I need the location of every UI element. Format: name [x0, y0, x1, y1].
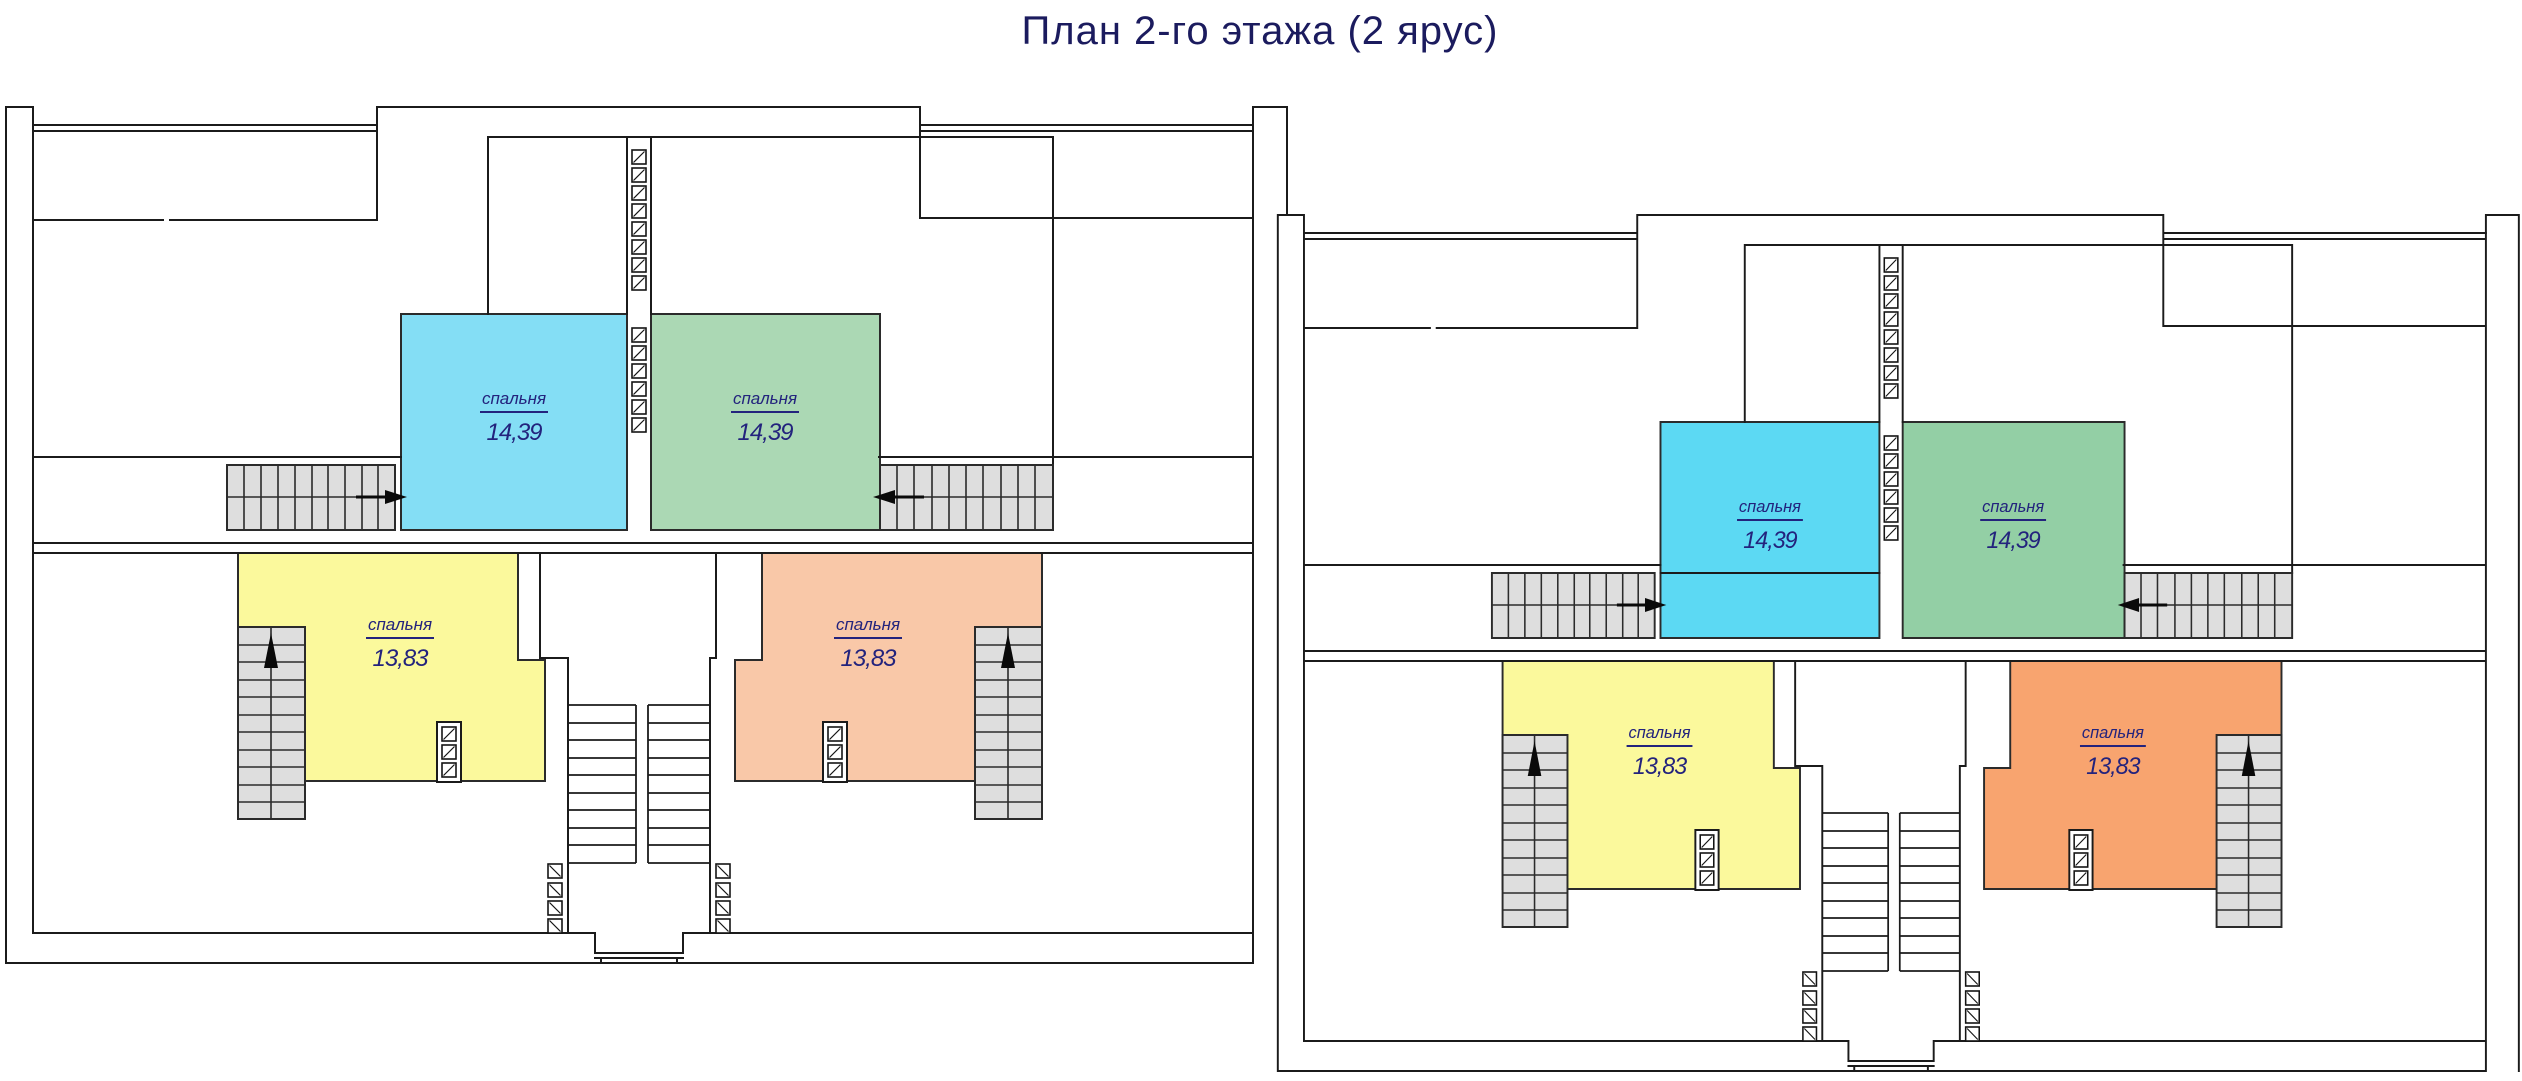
party-wall-cap — [1253, 107, 1287, 215]
vent-panel-right — [823, 722, 847, 782]
central-staircase — [548, 705, 730, 933]
walls — [6, 107, 1253, 963]
walls — [1278, 215, 2486, 1071]
svg-text:спальня: спальня — [1982, 497, 2044, 516]
stair-lower-left — [238, 627, 305, 819]
svg-text:13,83: 13,83 — [2086, 754, 2140, 780]
vent-panel-left — [1695, 830, 1718, 890]
unit-right: спальня 14,39 спальня 14,39 спальня 13,8… — [1278, 215, 2519, 1071]
floor-plan-canvas: План 2-го этажа (2 ярус) спальня 14,39 с… — [0, 0, 2522, 1081]
stair-lower-right — [975, 627, 1042, 819]
stair-lower-right — [2217, 735, 2282, 927]
svg-text:13,83: 13,83 — [840, 645, 897, 672]
svg-text:спальня: спальня — [1629, 723, 1691, 742]
svg-text:14,39: 14,39 — [486, 419, 542, 446]
central-staircase — [1803, 813, 1979, 1041]
svg-text:спальня: спальня — [482, 389, 546, 408]
svg-text:спальня: спальня — [1739, 497, 1801, 516]
svg-text:14,39: 14,39 — [1743, 528, 1797, 554]
stair-upper-left — [1492, 573, 1666, 638]
stair-upper-left — [227, 465, 407, 530]
page-title: План 2-го этажа (2 ярус) — [1022, 9, 1499, 53]
stair-upper-right — [873, 465, 1053, 530]
svg-text:спальня: спальня — [368, 615, 432, 634]
floor-plan-page: План 2-го этажа (2 ярус) спальня 14,39 с… — [0, 0, 2522, 1081]
svg-text:спальня: спальня — [2082, 723, 2144, 742]
outer-right-wall — [1660, 215, 2518, 1071]
svg-text:13,83: 13,83 — [372, 645, 429, 672]
svg-text:спальня: спальня — [733, 389, 797, 408]
stair-upper-right — [2118, 573, 2292, 638]
unit-left: спальня 14,39 спальня 14,39 спальня 13,8… — [6, 107, 1287, 963]
vent-shaft — [1884, 258, 1898, 540]
svg-text:13,83: 13,83 — [1633, 754, 1687, 780]
svg-text:14,39: 14,39 — [1986, 528, 2040, 554]
vent-panel-left — [437, 722, 461, 782]
vent-panel-right — [2069, 830, 2092, 890]
svg-text:спальня: спальня — [836, 615, 900, 634]
stair-lower-left — [1503, 735, 1568, 927]
vent-shaft — [632, 150, 646, 432]
svg-text:14,39: 14,39 — [737, 419, 793, 446]
